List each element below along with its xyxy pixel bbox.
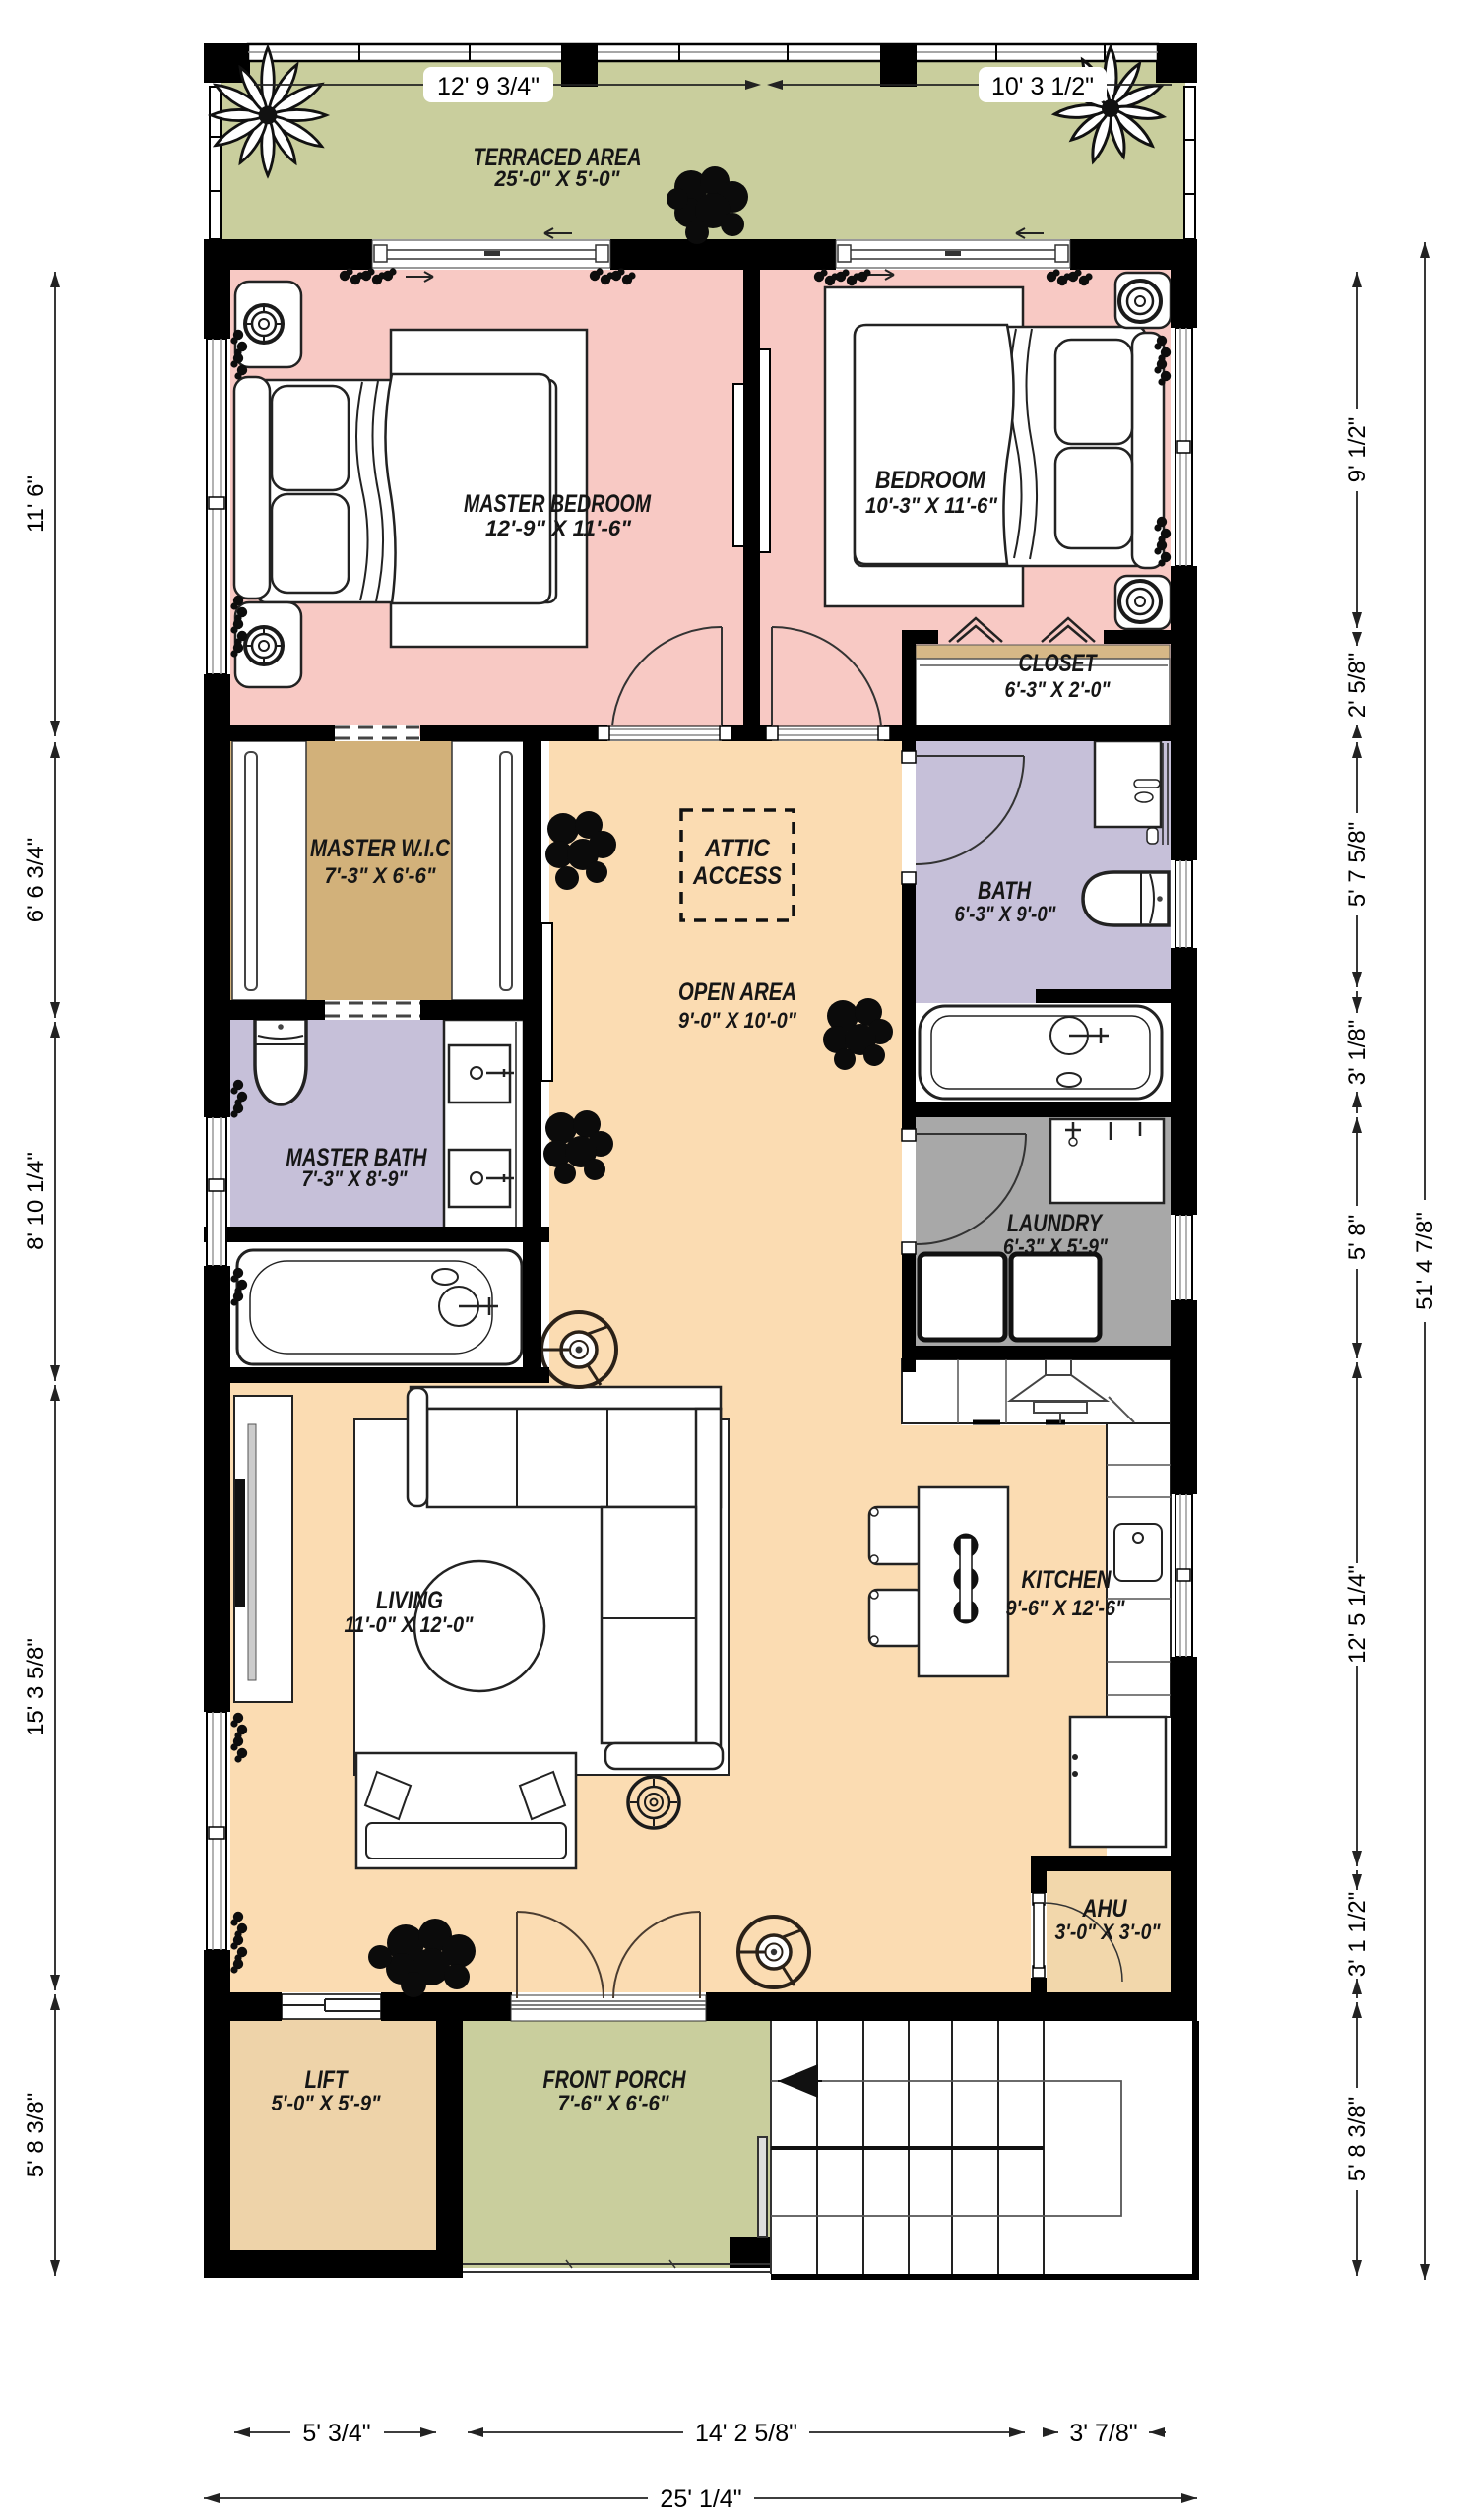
svg-text:OPEN AREA: OPEN AREA [678, 978, 796, 1006]
svg-text:CLOSET: CLOSET [1019, 650, 1099, 677]
svg-text:10'-3" X 11'-6": 10'-3" X 11'-6" [865, 493, 998, 518]
svg-text:LIVING: LIVING [376, 1587, 443, 1614]
svg-text:ATTIC: ATTIC [704, 835, 771, 862]
svg-text:6' 6 3/4": 6' 6 3/4" [23, 838, 49, 923]
svg-text:8' 10 1/4": 8' 10 1/4" [23, 1152, 49, 1250]
svg-text:6'-3" X 2'-0": 6'-3" X 2'-0" [1005, 677, 1111, 702]
svg-text:BEDROOM: BEDROOM [875, 467, 986, 494]
svg-text:3' 1/8": 3' 1/8" [1344, 1020, 1370, 1085]
svg-text:2' 5/8": 2' 5/8" [1344, 653, 1370, 718]
svg-text:7'-3" X 6'-6": 7'-3" X 6'-6" [325, 863, 437, 888]
svg-text:KITCHEN: KITCHEN [1022, 1566, 1112, 1594]
svg-text:7'-3" X 8'-9": 7'-3" X 8'-9" [302, 1166, 408, 1191]
svg-text:3' 1 1/2": 3' 1 1/2" [1344, 1892, 1370, 1978]
svg-text:12'-9" X 11'-6": 12'-9" X 11'-6" [485, 516, 632, 540]
svg-text:51' 4 7/8": 51' 4 7/8" [1412, 1212, 1438, 1310]
svg-text:5' 8": 5' 8" [1344, 1215, 1370, 1260]
svg-text:ACCESS: ACCESS [692, 862, 782, 890]
svg-text:25'-0" X 5'-0": 25'-0" X 5'-0" [494, 166, 620, 191]
svg-text:25' 1/4": 25' 1/4" [660, 2486, 741, 2513]
svg-text:5'-0" X 5'-9": 5'-0" X 5'-9" [272, 2091, 382, 2115]
svg-text:3'-0" X 3'-0": 3'-0" X 3'-0" [1055, 1920, 1161, 1944]
svg-text:9'-6" X 12'-6": 9'-6" X 12'-6" [1006, 1596, 1126, 1620]
svg-text:9'-0" X 10'-0": 9'-0" X 10'-0" [678, 1008, 797, 1033]
svg-text:10' 3 1/2": 10' 3 1/2" [991, 73, 1094, 100]
svg-text:AHU: AHU [1082, 1895, 1128, 1922]
svg-text:5' 7 5/8": 5' 7 5/8" [1344, 822, 1370, 908]
svg-text:7'-6" X 6'-6": 7'-6" X 6'-6" [558, 2091, 670, 2115]
svg-text:6'-3" X 5'-9": 6'-3" X 5'-9" [1003, 1234, 1108, 1259]
svg-text:11' 6": 11' 6" [23, 475, 49, 533]
svg-text:3' 7/8": 3' 7/8" [1069, 2420, 1137, 2447]
svg-text:MASTER W.I.C: MASTER W.I.C [310, 835, 451, 862]
svg-text:6'-3" X 9'-0": 6'-3" X 9'-0" [955, 902, 1056, 926]
svg-text:9' 1/2": 9' 1/2" [1344, 417, 1370, 482]
svg-text:15' 3 5/8": 15' 3 5/8" [23, 1638, 49, 1736]
svg-text:FRONT PORCH: FRONT PORCH [543, 2066, 687, 2094]
svg-text:5' 3/4": 5' 3/4" [302, 2420, 370, 2447]
svg-text:12' 5 1/4": 12' 5 1/4" [1344, 1565, 1370, 1664]
svg-text:LIFT: LIFT [305, 2066, 350, 2094]
svg-text:LAUNDRY: LAUNDRY [1007, 1210, 1104, 1237]
svg-text:5' 8 3/8": 5' 8 3/8" [1344, 2097, 1370, 2182]
svg-text:14' 2 5/8": 14' 2 5/8" [695, 2420, 797, 2447]
svg-text:BATH: BATH [978, 877, 1032, 905]
svg-text:MASTER BEDROOM: MASTER BEDROOM [464, 490, 652, 518]
svg-text:5' 8 3/8": 5' 8 3/8" [23, 2093, 49, 2178]
svg-text:12' 9 3/4": 12' 9 3/4" [437, 73, 540, 100]
svg-text:11'-0" X 12'-0": 11'-0" X 12'-0" [345, 1612, 475, 1637]
